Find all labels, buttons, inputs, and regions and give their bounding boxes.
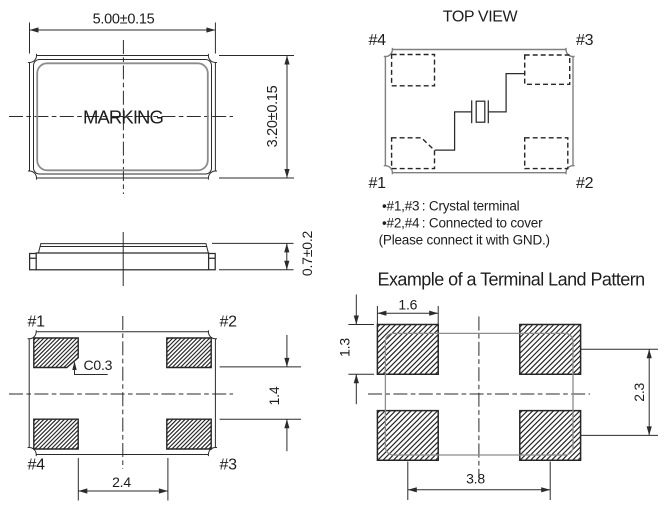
svg-text:0.7±0.2: 0.7±0.2: [299, 230, 315, 276]
svg-text:•#1,#3 : Crystal terminal: •#1,#3 : Crystal terminal: [382, 199, 520, 214]
svg-text:MARKING: MARKING: [83, 107, 164, 128]
svg-text:#1: #1: [28, 313, 46, 330]
svg-text:#3: #3: [576, 32, 594, 49]
svg-text:Example of a Terminal Land Pat: Example of a Terminal Land Pattern: [378, 270, 645, 290]
svg-text:#3: #3: [220, 456, 238, 473]
svg-text:5.00±0.15: 5.00±0.15: [93, 12, 155, 28]
svg-text:(Please connect it with GND.): (Please connect it with GND.): [379, 233, 550, 248]
svg-text:#4: #4: [28, 456, 46, 473]
svg-text:#1: #1: [369, 175, 387, 192]
svg-text:2.3: 2.3: [631, 382, 647, 401]
svg-text:1.6: 1.6: [398, 297, 417, 313]
svg-text:2.4: 2.4: [112, 474, 131, 490]
svg-text:#4: #4: [369, 32, 387, 49]
svg-text:C0.3: C0.3: [84, 357, 113, 373]
svg-text:3.20±0.15: 3.20±0.15: [265, 85, 281, 147]
svg-text:#2: #2: [576, 175, 594, 192]
svg-text:TOP VIEW: TOP VIEW: [443, 9, 519, 26]
svg-text:#2: #2: [220, 313, 238, 330]
svg-text:1.4: 1.4: [266, 386, 282, 405]
svg-text:•#2,#4 : Connected to cover: •#2,#4 : Connected to cover: [382, 216, 543, 231]
svg-text:3.8: 3.8: [466, 471, 485, 487]
svg-text:1.3: 1.3: [337, 338, 353, 357]
